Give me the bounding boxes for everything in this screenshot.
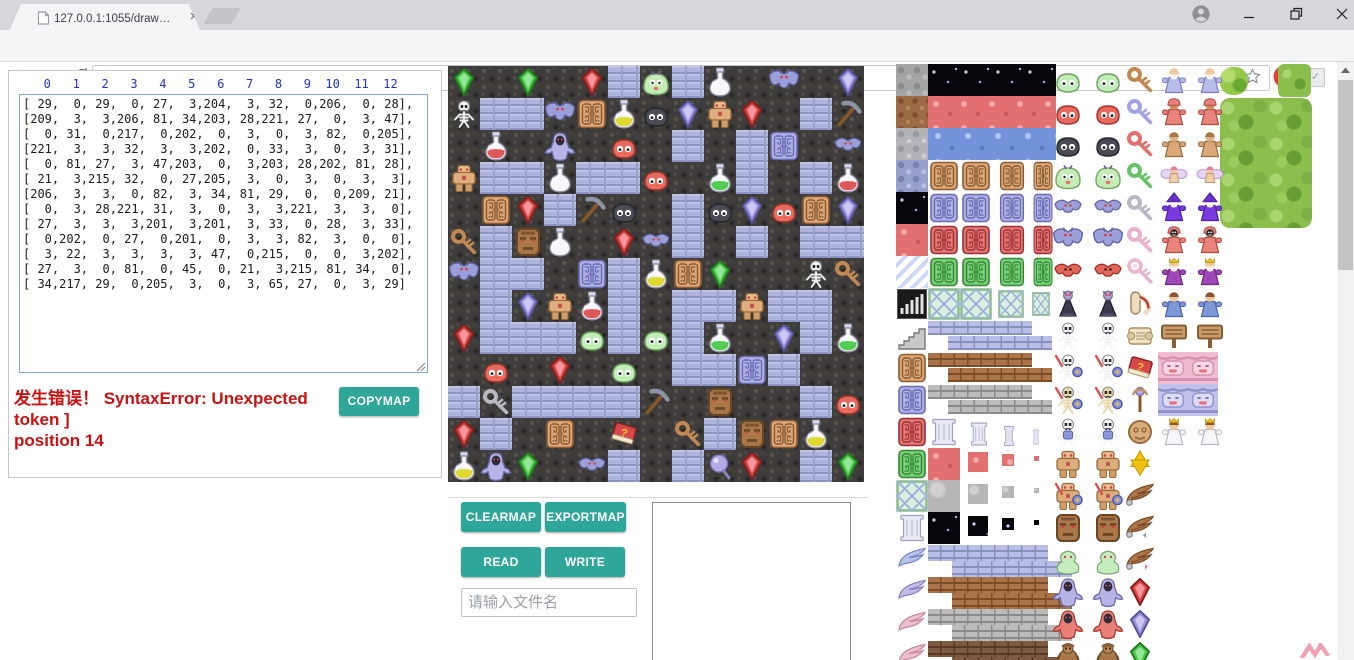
map-tile[interactable] [704, 290, 736, 322]
tileset-tile[interactable] [998, 192, 1026, 224]
map-tile[interactable] [576, 258, 608, 290]
map-tile[interactable] [448, 194, 480, 226]
tileset-tile[interactable] [1092, 544, 1124, 576]
map-tile[interactable] [448, 354, 480, 386]
profile-icon[interactable] [1191, 4, 1211, 24]
tileset-tile[interactable] [1092, 384, 1124, 416]
tileset-tile[interactable] [928, 224, 960, 256]
tileset-tile[interactable] [1124, 512, 1156, 544]
map-tile[interactable] [608, 354, 640, 386]
map-tile[interactable] [512, 290, 544, 322]
tileset-tile[interactable] [928, 321, 1032, 335]
map-tile[interactable] [672, 322, 704, 354]
map-tile[interactable] [800, 386, 832, 418]
tileset-tile[interactable] [1032, 256, 1054, 288]
map-tile[interactable] [704, 322, 736, 354]
write-button[interactable]: WRITE [545, 547, 625, 577]
map-tile[interactable] [640, 290, 672, 322]
map-tile[interactable] [736, 354, 768, 386]
tileset-tile[interactable] [1034, 488, 1039, 493]
tileset-tile[interactable] [1092, 480, 1124, 512]
tileset-tile[interactable] [1124, 256, 1156, 288]
tileset-tile[interactable] [1124, 384, 1156, 416]
map-tile[interactable] [832, 66, 864, 98]
tileset-tile[interactable] [1278, 64, 1311, 97]
map-tile[interactable] [512, 418, 544, 450]
map-tile[interactable] [608, 258, 640, 290]
map-tile[interactable] [800, 66, 832, 98]
map-tile[interactable] [576, 450, 608, 482]
tileset-tile[interactable] [1124, 544, 1156, 576]
map-tile[interactable] [512, 66, 544, 98]
map-tile[interactable] [672, 450, 704, 482]
tileset-tile[interactable] [1032, 192, 1054, 224]
tileset-tile[interactable] [1194, 320, 1226, 352]
tileset-tile[interactable] [1052, 128, 1084, 160]
map-tile[interactable] [832, 418, 864, 450]
map-tile[interactable] [672, 162, 704, 194]
map-tile[interactable] [800, 226, 832, 258]
map-tile[interactable] [608, 130, 640, 162]
tileset-tile[interactable] [1052, 256, 1084, 288]
tileset-tile[interactable] [960, 224, 992, 256]
tileset-tile[interactable] [928, 160, 960, 192]
map-tile[interactable] [800, 162, 832, 194]
map-tile[interactable] [736, 226, 768, 258]
clearmap-button[interactable]: CLEARMAP [461, 502, 541, 532]
tileset-tile[interactable] [1032, 428, 1040, 446]
map-canvas[interactable]: ? [448, 66, 864, 482]
tileset-tile[interactable]: ? [1124, 352, 1156, 384]
tileset-tile[interactable] [1034, 520, 1039, 525]
map-tile[interactable] [768, 450, 800, 482]
tileset-tile[interactable] [1194, 96, 1226, 128]
map-tile[interactable] [640, 226, 672, 258]
map-tile[interactable] [608, 386, 640, 418]
tileset-tile[interactable] [1124, 64, 1156, 96]
map-tile[interactable] [480, 386, 512, 418]
map-tile[interactable] [800, 98, 832, 130]
map-tile[interactable] [640, 386, 672, 418]
tileset-tile[interactable] [896, 608, 928, 640]
map-tile[interactable] [544, 386, 576, 418]
map-tile[interactable] [768, 386, 800, 418]
map-tile[interactable] [736, 418, 768, 450]
tileset-tile[interactable] [928, 448, 960, 480]
tileset-tile[interactable] [928, 641, 1048, 657]
tileset-tile[interactable] [1002, 454, 1014, 466]
tileset-tile[interactable] [1052, 320, 1084, 352]
window-close-icon[interactable] [1333, 5, 1351, 23]
tileset-tile[interactable] [1032, 224, 1054, 256]
tileset-tile[interactable] [1194, 160, 1226, 192]
tileset-tile[interactable] [896, 448, 928, 480]
filename-input[interactable] [461, 588, 637, 617]
map-tile[interactable] [704, 162, 736, 194]
restore-icon[interactable] [1287, 5, 1305, 23]
tileset-tile[interactable] [896, 192, 928, 224]
tileset-tile[interactable] [1158, 96, 1190, 128]
tileset-tile[interactable] [1092, 192, 1124, 224]
map-tile[interactable] [832, 290, 864, 322]
map-tile[interactable] [672, 66, 704, 98]
tileset-tile[interactable] [1194, 256, 1226, 288]
tileset-tile[interactable] [1002, 486, 1014, 498]
map-tile[interactable] [480, 354, 512, 386]
tileset-tile[interactable] [1092, 512, 1124, 544]
tileset-tile[interactable] [928, 545, 1048, 561]
tileset-tile[interactable] [960, 256, 992, 288]
page-scrollbar[interactable] [1337, 62, 1354, 660]
tileset-tile[interactable] [1052, 160, 1084, 192]
tileset-tile[interactable] [968, 516, 988, 536]
map-tile[interactable] [544, 162, 576, 194]
map-tile[interactable] [832, 194, 864, 226]
map-tile[interactable] [576, 354, 608, 386]
map-tile[interactable] [672, 258, 704, 290]
tileset-tile[interactable] [1002, 424, 1016, 448]
map-tile[interactable] [736, 194, 768, 226]
tileset-tile[interactable] [1092, 320, 1124, 352]
tileset-tile[interactable] [928, 609, 1048, 625]
copymap-button[interactable]: COPYMAP [339, 387, 419, 416]
map-tile[interactable] [448, 322, 480, 354]
map-tile[interactable] [704, 386, 736, 418]
tileset-tile[interactable] [1092, 160, 1124, 192]
tileset-tile[interactable] [1052, 416, 1084, 448]
scrollbar-thumb[interactable] [1338, 80, 1353, 270]
map-tile[interactable] [576, 226, 608, 258]
tileset-tile[interactable] [1124, 160, 1156, 192]
tileset-tile[interactable] [1052, 448, 1084, 480]
map-tile[interactable] [832, 226, 864, 258]
map-tile[interactable] [608, 66, 640, 98]
map-tile[interactable] [448, 450, 480, 482]
tileset-tile[interactable] [968, 452, 988, 472]
map-tile[interactable] [512, 162, 544, 194]
map-tile[interactable] [832, 386, 864, 418]
tileset-tile[interactable] [896, 128, 928, 160]
map-tile[interactable] [736, 290, 768, 322]
tileset-tile[interactable] [1194, 64, 1226, 96]
tileset-tile[interactable] [1300, 643, 1330, 660]
tileset-tile[interactable] [998, 224, 1026, 256]
tileset-tile[interactable] [1052, 288, 1084, 320]
tileset-tile[interactable] [896, 352, 928, 384]
tileset-tile[interactable] [896, 416, 928, 448]
tileset-tile[interactable] [928, 480, 960, 512]
tileset-tile[interactable] [1052, 224, 1084, 256]
map-tile[interactable] [768, 322, 800, 354]
map-tile[interactable] [832, 450, 864, 482]
map-tile[interactable] [544, 226, 576, 258]
tileset-tile[interactable] [896, 96, 928, 128]
map-tile[interactable] [576, 418, 608, 450]
tileset-tile[interactable] [1158, 192, 1190, 224]
map-tile[interactable] [672, 130, 704, 162]
map-tile[interactable] [480, 258, 512, 290]
tileset-tile[interactable] [1158, 128, 1190, 160]
map-tile[interactable] [512, 354, 544, 386]
tileset-tile[interactable] [896, 640, 928, 660]
map-tile[interactable] [768, 66, 800, 98]
map-tile[interactable] [768, 130, 800, 162]
tileset-tile[interactable] [1194, 288, 1226, 320]
tileset-tile[interactable] [928, 192, 960, 224]
map-tile[interactable] [480, 322, 512, 354]
tileset-tile[interactable] [1158, 256, 1190, 288]
tileset-tile[interactable] [1158, 416, 1190, 448]
map-tile[interactable] [576, 130, 608, 162]
tileset-tile[interactable] [1092, 608, 1124, 640]
map-tile[interactable] [512, 226, 544, 258]
tileset-tile[interactable] [1092, 96, 1124, 128]
map-tile[interactable] [832, 98, 864, 130]
map-tile[interactable] [544, 290, 576, 322]
map-tile[interactable]: ? [608, 418, 640, 450]
map-tile[interactable] [640, 418, 672, 450]
map-tile[interactable] [800, 194, 832, 226]
map-tile[interactable] [480, 194, 512, 226]
map-tile[interactable] [640, 322, 672, 354]
map-tile[interactable] [704, 226, 736, 258]
tileset-tile[interactable] [1002, 518, 1014, 530]
tileset-tile[interactable] [968, 484, 988, 504]
tileset-tile[interactable] [1124, 288, 1156, 320]
map-tile[interactable] [544, 450, 576, 482]
tileset-tile[interactable] [968, 420, 990, 448]
tileset-tile[interactable] [1124, 96, 1156, 128]
map-tile[interactable] [768, 354, 800, 386]
map-tile[interactable] [608, 322, 640, 354]
textarea-resize-grip[interactable] [414, 360, 426, 372]
map-tile[interactable] [768, 98, 800, 130]
tileset-tile[interactable] [1032, 160, 1054, 192]
tileset-tile[interactable] [928, 577, 1048, 593]
map-tile[interactable] [480, 162, 512, 194]
tileset-tile[interactable] [948, 336, 1052, 350]
map-tile[interactable] [544, 130, 576, 162]
map-tile[interactable] [640, 66, 672, 98]
map-tile[interactable] [736, 322, 768, 354]
tileset-tile[interactable] [1194, 128, 1226, 160]
map-tile[interactable] [512, 386, 544, 418]
tileset-tile[interactable] [1124, 608, 1156, 640]
map-tile[interactable] [640, 162, 672, 194]
map-tile[interactable] [544, 98, 576, 130]
browser-tab[interactable]: 127.0.0.1:1055/drawMa ✕ [10, 4, 200, 30]
tileset-tile[interactable] [928, 128, 1056, 160]
tileset-tile[interactable] [928, 353, 1032, 367]
tileset-tile[interactable] [1092, 448, 1124, 480]
map-tile[interactable] [768, 290, 800, 322]
tileset-tile[interactable] [896, 512, 928, 544]
map-tile[interactable] [576, 66, 608, 98]
map-tile[interactable] [544, 66, 576, 98]
tileset-tile[interactable] [1158, 320, 1190, 352]
tileset-tile[interactable] [960, 192, 992, 224]
map-tile[interactable] [800, 418, 832, 450]
map-tile[interactable] [704, 450, 736, 482]
tileset-tile[interactable] [928, 385, 1032, 399]
map-tile[interactable] [576, 162, 608, 194]
tileset-tile[interactable] [1158, 160, 1190, 192]
tileset-tile[interactable] [928, 256, 960, 288]
map-tile[interactable] [608, 98, 640, 130]
map-tile[interactable] [640, 98, 672, 130]
tileset-tile[interactable] [948, 368, 1052, 382]
tileset-tile[interactable] [1092, 64, 1124, 96]
tab-close-icon[interactable]: ✕ [188, 11, 200, 23]
map-matrix-textarea[interactable] [19, 94, 428, 373]
tileset-tile[interactable] [1124, 416, 1156, 448]
map-tile[interactable] [832, 162, 864, 194]
tileset-tile[interactable] [896, 288, 928, 320]
map-tile[interactable] [448, 386, 480, 418]
tileset-tile[interactable] [1052, 64, 1084, 96]
map-tile[interactable] [704, 418, 736, 450]
tileset-tile[interactable] [1158, 352, 1188, 384]
map-tile[interactable] [704, 98, 736, 130]
map-tile[interactable] [768, 194, 800, 226]
map-tile[interactable] [800, 258, 832, 290]
tileset-tile[interactable] [1052, 608, 1084, 640]
tileset-tile[interactable] [896, 320, 928, 352]
tileset-tile[interactable] [896, 480, 928, 512]
tileset-palette[interactable]: ? [896, 64, 1330, 660]
tileset-tile[interactable] [1194, 192, 1226, 224]
map-tile[interactable] [480, 226, 512, 258]
tileset-tile[interactable] [1092, 640, 1124, 660]
map-tile[interactable] [512, 130, 544, 162]
tileset-tile[interactable] [928, 64, 1056, 96]
map-tile[interactable] [832, 354, 864, 386]
tileset-tile[interactable] [896, 224, 928, 256]
tileset-tile[interactable] [1032, 292, 1050, 316]
tileset-tile[interactable] [928, 288, 960, 320]
tileset-tile[interactable] [1158, 64, 1190, 96]
map-tile[interactable] [768, 258, 800, 290]
tileset-tile[interactable] [1052, 96, 1084, 128]
tileset-tile[interactable] [960, 288, 992, 320]
map-tile[interactable] [640, 258, 672, 290]
map-tile[interactable] [544, 258, 576, 290]
tileset-tile[interactable] [896, 160, 928, 192]
map-tile[interactable] [800, 322, 832, 354]
map-tile[interactable] [672, 226, 704, 258]
map-tile[interactable] [480, 418, 512, 450]
map-tile[interactable] [448, 226, 480, 258]
map-tile[interactable] [768, 162, 800, 194]
tileset-tile[interactable] [998, 160, 1026, 192]
map-tile[interactable] [608, 226, 640, 258]
map-tile[interactable] [480, 98, 512, 130]
map-tile[interactable] [448, 418, 480, 450]
tileset-tile[interactable] [1220, 98, 1312, 228]
tileset-tile[interactable] [1124, 480, 1156, 512]
tileset-tile[interactable] [1092, 352, 1124, 384]
map-tile[interactable] [736, 450, 768, 482]
map-tile[interactable] [640, 194, 672, 226]
tileset-tile[interactable] [1092, 224, 1124, 256]
map-tile[interactable] [800, 450, 832, 482]
tileset-tile[interactable] [1158, 224, 1190, 256]
tileset-tile[interactable] [1194, 224, 1226, 256]
tileset-tile[interactable] [896, 64, 928, 96]
map-tile[interactable] [704, 194, 736, 226]
map-tile[interactable] [512, 258, 544, 290]
map-tile[interactable] [672, 194, 704, 226]
map-tile[interactable] [544, 354, 576, 386]
tileset-tile[interactable] [1158, 288, 1190, 320]
map-tile[interactable] [448, 130, 480, 162]
tileset-tile[interactable] [1092, 256, 1124, 288]
map-tile[interactable] [800, 354, 832, 386]
map-tile[interactable] [576, 386, 608, 418]
read-button[interactable]: READ [461, 547, 541, 577]
tileset-tile[interactable] [896, 544, 928, 576]
tileset-tile[interactable] [1092, 576, 1124, 608]
map-tile[interactable] [704, 130, 736, 162]
scrollbar-up-icon[interactable] [1337, 62, 1354, 79]
map-tile[interactable] [576, 322, 608, 354]
map-tile[interactable] [544, 322, 576, 354]
tileset-tile[interactable] [998, 290, 1024, 318]
map-tile[interactable] [704, 258, 736, 290]
map-tile[interactable] [832, 258, 864, 290]
minimize-icon[interactable] [1240, 5, 1258, 23]
map-tile[interactable] [480, 290, 512, 322]
tileset-tile[interactable] [1052, 512, 1084, 544]
tileset-tile[interactable] [1092, 128, 1124, 160]
tileset-tile[interactable] [1052, 640, 1084, 660]
tileset-tile[interactable] [1034, 456, 1039, 461]
tileset-tile[interactable] [998, 256, 1026, 288]
tileset-tile[interactable] [928, 96, 1056, 128]
tileset-tile[interactable] [1052, 480, 1084, 512]
tileset-tile[interactable] [1052, 576, 1084, 608]
map-tile[interactable] [448, 258, 480, 290]
map-tile[interactable] [736, 98, 768, 130]
map-tile[interactable] [512, 98, 544, 130]
map-tile[interactable] [544, 194, 576, 226]
map-tile[interactable] [448, 98, 480, 130]
map-tile[interactable] [704, 66, 736, 98]
tileset-tile[interactable] [1194, 416, 1226, 448]
map-tile[interactable] [448, 162, 480, 194]
tileset-tile[interactable] [1124, 640, 1156, 660]
map-tile[interactable] [608, 162, 640, 194]
tileset-tile[interactable] [1092, 288, 1124, 320]
map-tile[interactable] [736, 162, 768, 194]
map-tile[interactable] [544, 418, 576, 450]
tileset-tile[interactable] [1124, 192, 1156, 224]
map-tile[interactable] [832, 322, 864, 354]
map-tile[interactable] [672, 98, 704, 130]
map-tile[interactable] [576, 194, 608, 226]
map-tile[interactable] [736, 386, 768, 418]
map-tile[interactable] [448, 66, 480, 98]
map-tile[interactable] [640, 450, 672, 482]
tileset-tile[interactable] [896, 256, 928, 288]
map-tile[interactable] [800, 130, 832, 162]
map-tile[interactable] [704, 354, 736, 386]
tileset-tile[interactable] [1124, 128, 1156, 160]
tileset-tile[interactable] [928, 416, 960, 448]
map-tile[interactable] [608, 194, 640, 226]
map-tile[interactable] [480, 130, 512, 162]
new-tab-button[interactable] [203, 8, 240, 24]
